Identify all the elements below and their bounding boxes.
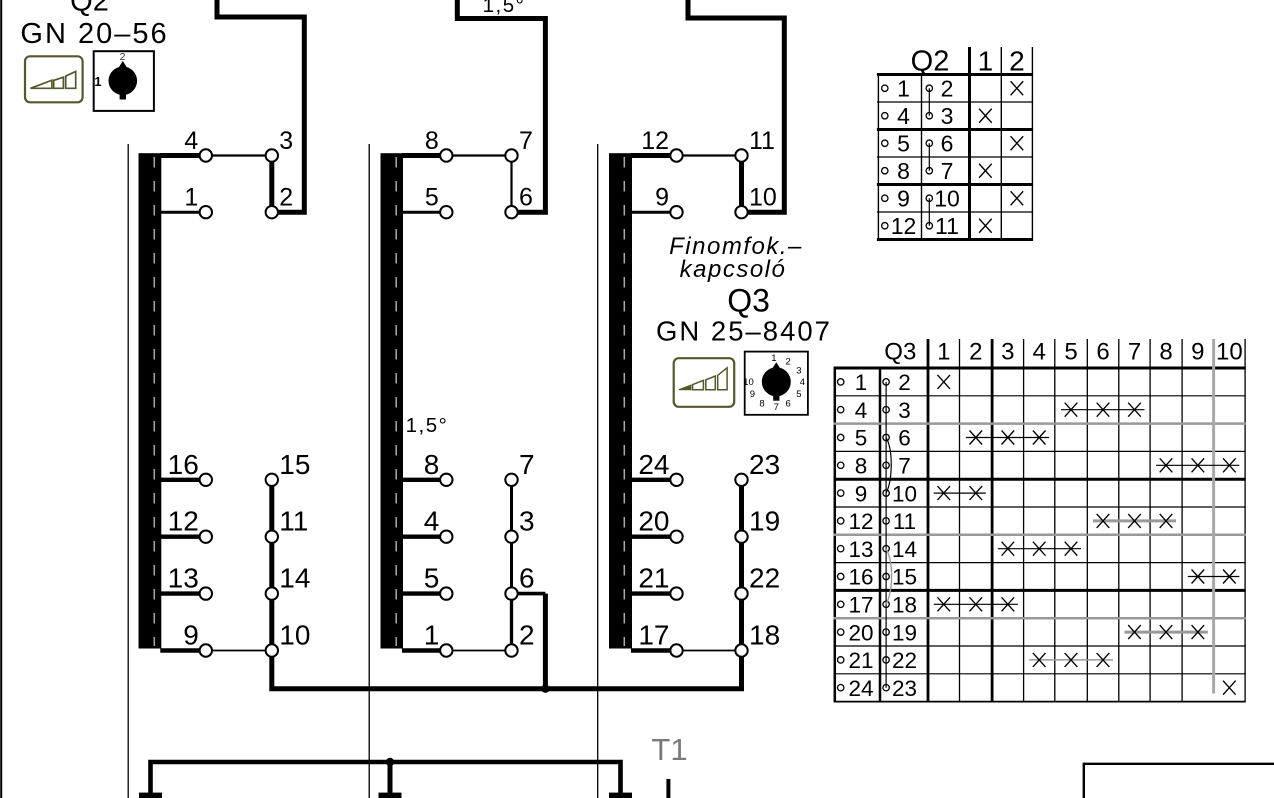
svg-text:22: 22 <box>892 648 917 673</box>
svg-text:23: 23 <box>892 676 917 701</box>
svg-text:Q2: Q2 <box>70 0 109 18</box>
svg-text:6: 6 <box>1096 338 1109 365</box>
svg-text:3: 3 <box>519 506 535 537</box>
svg-text:9: 9 <box>750 389 755 400</box>
svg-text:2: 2 <box>786 356 791 367</box>
svg-text:3: 3 <box>796 366 801 377</box>
svg-text:10: 10 <box>934 185 960 211</box>
svg-text:1: 1 <box>184 184 198 212</box>
svg-text:8: 8 <box>897 158 910 184</box>
svg-text:1: 1 <box>897 75 910 101</box>
svg-text:16: 16 <box>168 449 199 480</box>
svg-text:2: 2 <box>1009 45 1025 76</box>
svg-text:8: 8 <box>425 127 439 155</box>
svg-text:17: 17 <box>848 593 873 618</box>
svg-text:1: 1 <box>94 74 101 89</box>
svg-text:4: 4 <box>424 506 440 537</box>
svg-text:5: 5 <box>424 563 440 594</box>
svg-text:20: 20 <box>638 506 669 537</box>
svg-text:3: 3 <box>941 103 954 129</box>
svg-text:11: 11 <box>749 127 775 155</box>
svg-text:12: 12 <box>168 506 199 537</box>
svg-text:Q3: Q3 <box>727 283 770 319</box>
svg-text:GN 25–8407: GN 25–8407 <box>656 316 832 347</box>
svg-text:3: 3 <box>898 398 911 423</box>
svg-text:9: 9 <box>1191 338 1204 365</box>
svg-text:4: 4 <box>855 398 868 423</box>
svg-text:5: 5 <box>897 130 910 156</box>
svg-text:10: 10 <box>749 184 777 212</box>
svg-text:8: 8 <box>1159 338 1172 365</box>
svg-text:11: 11 <box>935 213 959 239</box>
svg-text:10: 10 <box>743 377 754 388</box>
svg-text:1: 1 <box>978 45 994 76</box>
svg-text:4: 4 <box>1033 338 1046 365</box>
svg-text:6: 6 <box>519 184 533 212</box>
svg-text:8: 8 <box>759 398 764 409</box>
svg-text:5: 5 <box>796 389 801 400</box>
svg-text:11: 11 <box>279 506 308 537</box>
svg-text:kapcsoló: kapcsoló <box>680 256 787 283</box>
svg-text:2: 2 <box>519 620 535 651</box>
svg-text:4: 4 <box>184 127 198 155</box>
svg-text:1: 1 <box>937 338 950 365</box>
svg-text:1: 1 <box>771 353 776 364</box>
svg-text:13: 13 <box>848 537 873 562</box>
svg-text:18: 18 <box>749 620 780 651</box>
svg-text:7: 7 <box>1128 338 1141 365</box>
svg-text:11: 11 <box>893 509 916 534</box>
svg-text:2: 2 <box>941 75 954 101</box>
svg-text:24: 24 <box>638 449 669 480</box>
svg-text:6: 6 <box>941 130 954 156</box>
svg-text:19: 19 <box>749 506 780 537</box>
svg-text:6: 6 <box>519 563 535 594</box>
svg-text:13: 13 <box>168 563 199 594</box>
svg-text:15: 15 <box>279 449 310 480</box>
svg-text:21: 21 <box>638 563 669 594</box>
svg-text:10: 10 <box>1216 338 1243 365</box>
svg-text:5: 5 <box>425 184 439 212</box>
svg-text:10: 10 <box>279 620 310 651</box>
svg-text:5: 5 <box>1064 338 1077 365</box>
svg-text:8: 8 <box>855 454 868 479</box>
svg-text:12: 12 <box>641 127 669 155</box>
svg-text:2: 2 <box>279 184 293 212</box>
svg-text:7: 7 <box>774 402 779 413</box>
svg-text:Q3: Q3 <box>884 338 916 365</box>
svg-text:19: 19 <box>892 620 917 645</box>
svg-text:12: 12 <box>848 509 873 534</box>
svg-text:14: 14 <box>892 537 917 562</box>
svg-text:9: 9 <box>855 481 868 506</box>
svg-text:7: 7 <box>898 454 911 479</box>
svg-text:15: 15 <box>892 565 917 590</box>
svg-text:8: 8 <box>424 449 440 480</box>
svg-text:3: 3 <box>1001 338 1014 365</box>
svg-text:1: 1 <box>424 620 440 651</box>
svg-text:22: 22 <box>749 563 780 594</box>
svg-text:1,5°: 1,5° <box>406 414 449 437</box>
svg-text:5: 5 <box>855 426 868 451</box>
svg-text:2: 2 <box>969 338 982 365</box>
svg-text:6: 6 <box>898 426 911 451</box>
svg-text:12: 12 <box>891 213 917 239</box>
svg-text:2: 2 <box>898 370 911 395</box>
svg-text:GN 20–56: GN 20–56 <box>20 18 168 50</box>
svg-text:23: 23 <box>749 449 780 480</box>
svg-text:7: 7 <box>519 127 533 155</box>
svg-text:Q2: Q2 <box>911 45 950 77</box>
svg-text:1: 1 <box>855 370 868 395</box>
svg-text:24: 24 <box>848 676 873 701</box>
svg-text:16: 16 <box>848 565 873 590</box>
svg-text:1,5°: 1,5° <box>483 0 526 17</box>
svg-text:18: 18 <box>892 593 917 618</box>
svg-text:17: 17 <box>638 620 669 651</box>
svg-text:4: 4 <box>800 377 805 388</box>
svg-text:9: 9 <box>183 620 199 651</box>
svg-text:7: 7 <box>519 449 535 480</box>
svg-text:9: 9 <box>897 185 910 211</box>
svg-text:3: 3 <box>279 127 293 155</box>
svg-text:10: 10 <box>892 481 917 506</box>
svg-text:6: 6 <box>786 398 791 409</box>
svg-text:9: 9 <box>655 184 669 212</box>
svg-text:21: 21 <box>848 648 873 673</box>
svg-text:14: 14 <box>279 563 310 594</box>
svg-text:7: 7 <box>941 158 954 184</box>
svg-text:20: 20 <box>848 620 873 645</box>
svg-text:T1: T1 <box>651 732 687 767</box>
svg-text:4: 4 <box>897 103 910 129</box>
